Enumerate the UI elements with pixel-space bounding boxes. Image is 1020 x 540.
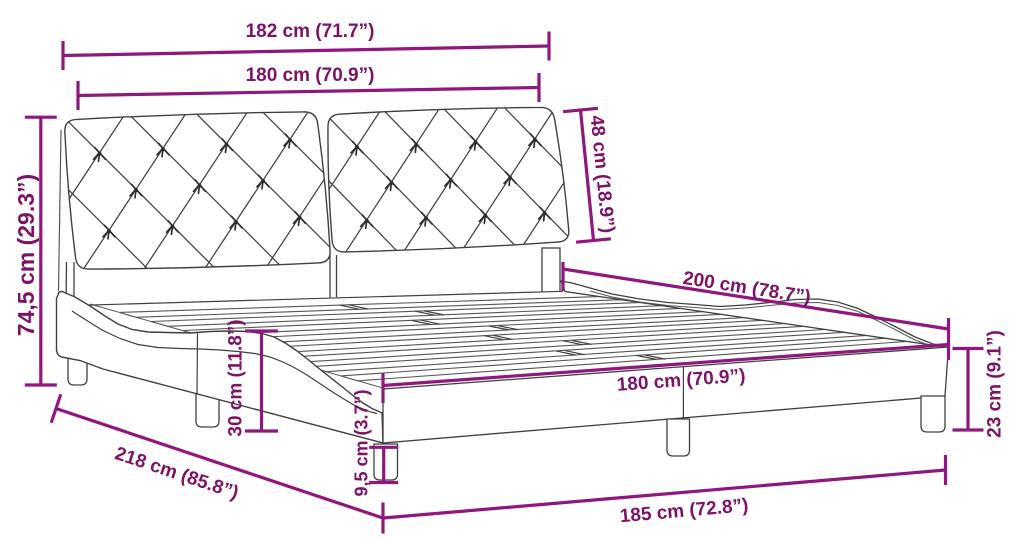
svg-text:182 cm (71.7”): 182 cm (71.7”) (246, 21, 375, 42)
svg-text:30 cm (11.8”): 30 cm (11.8”) (226, 319, 247, 436)
svg-text:9,5 cm (3.7”): 9,5 cm (3.7”) (351, 389, 371, 496)
svg-text:74,5 cm (29.3”): 74,5 cm (29.3”) (13, 174, 39, 336)
svg-text:180 cm (70.9”): 180 cm (70.9”) (246, 65, 375, 86)
svg-text:23 cm (9.1”): 23 cm (9.1”) (985, 330, 1006, 438)
